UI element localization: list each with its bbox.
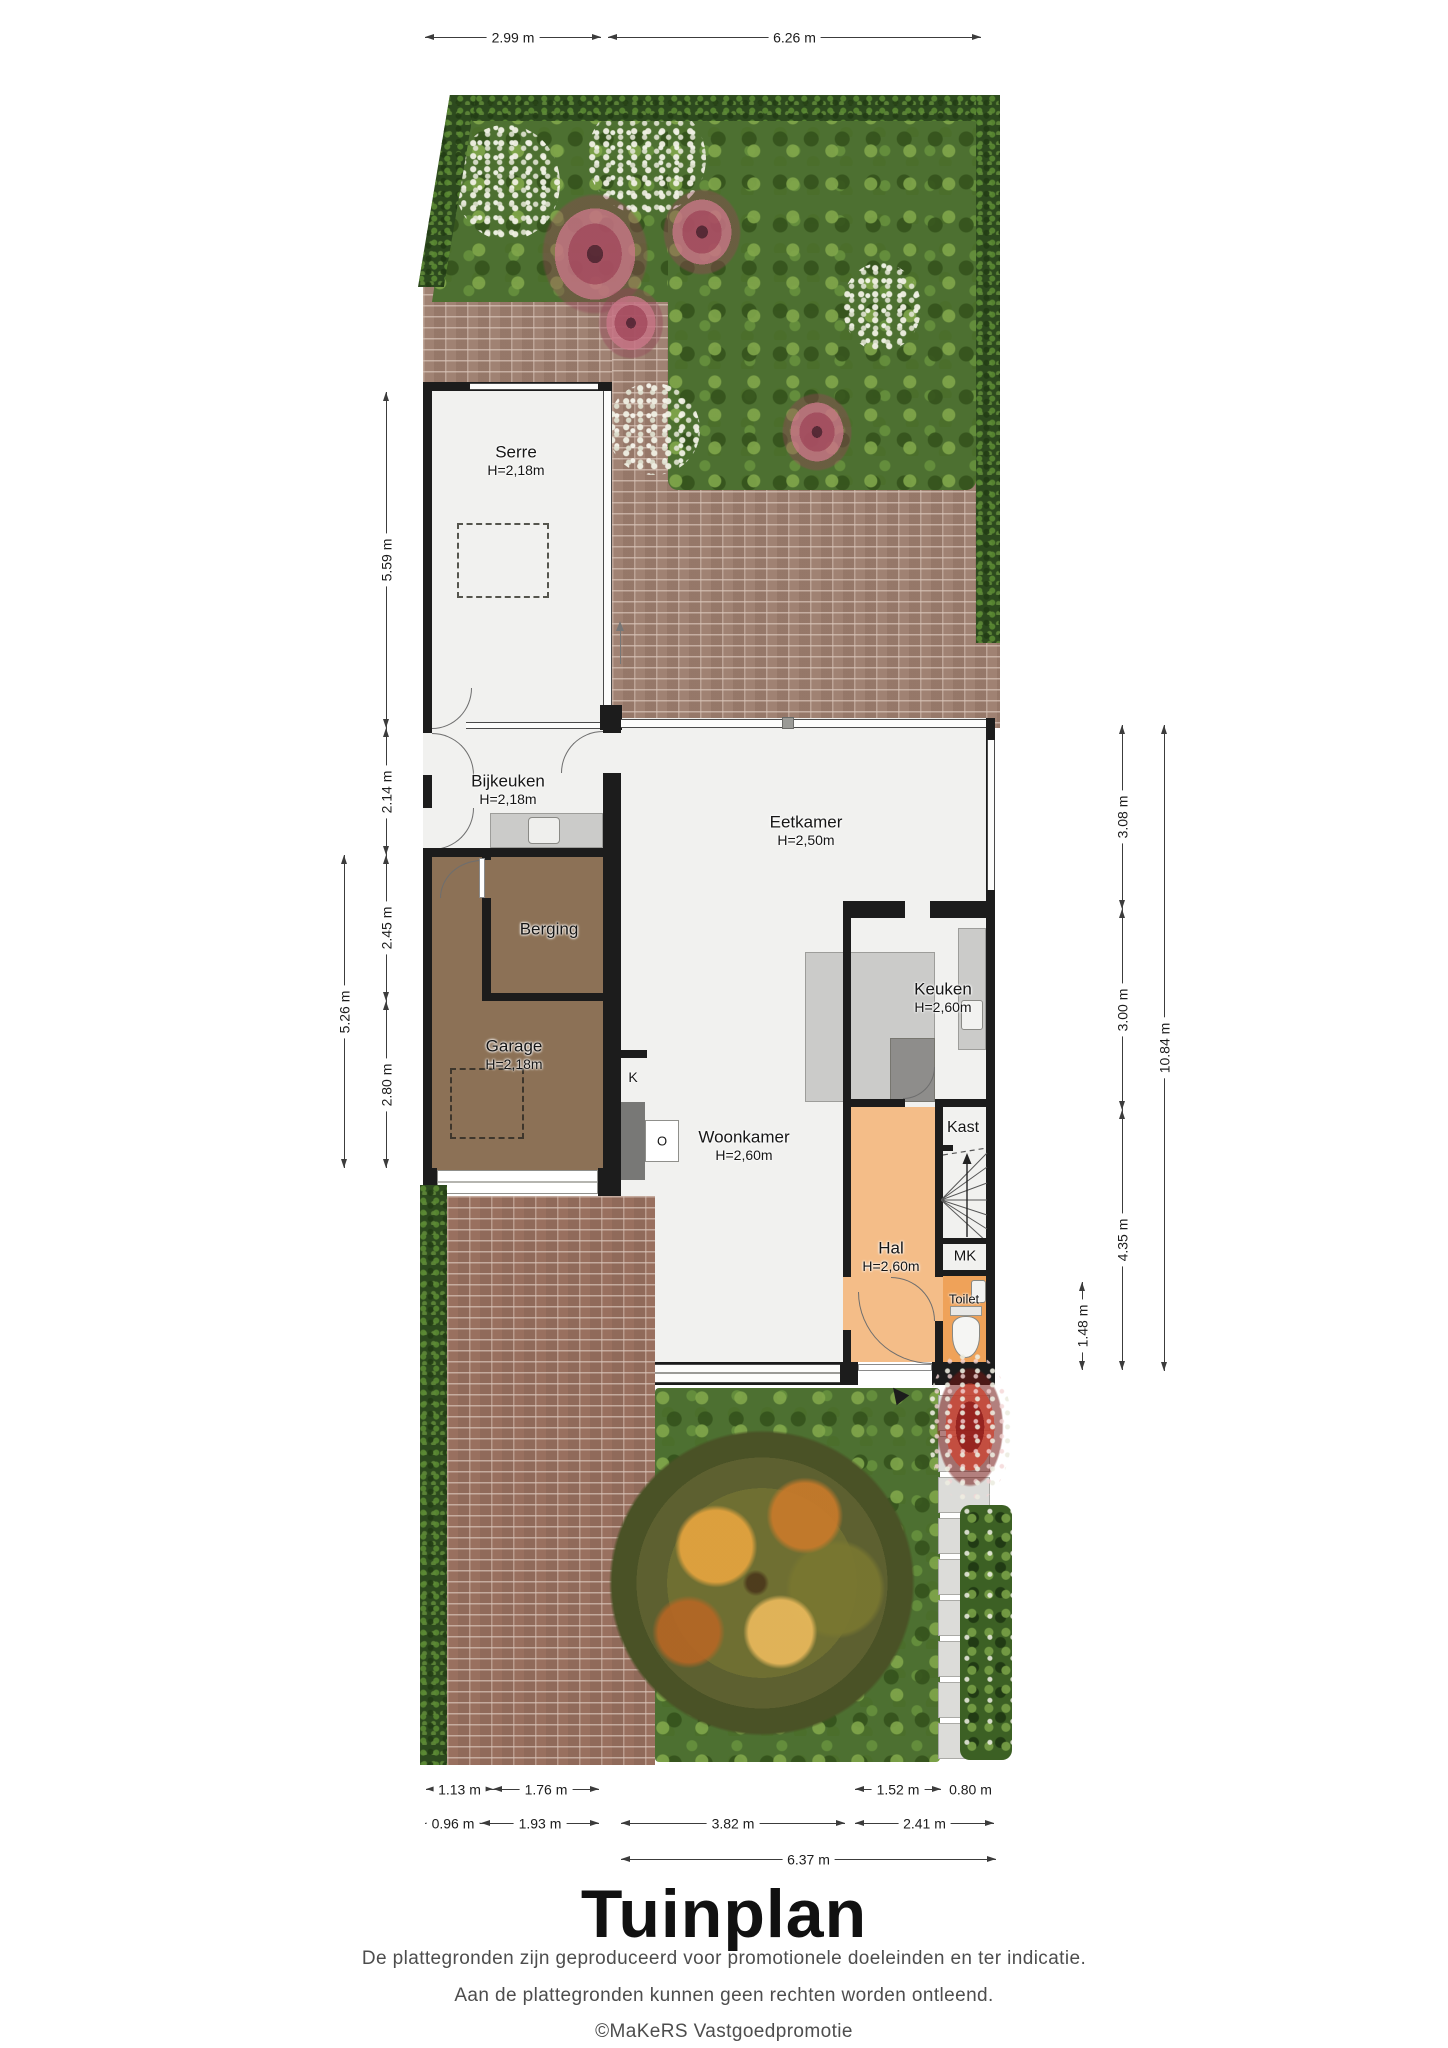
eetkamer-right-window	[987, 740, 995, 890]
hedge-right	[976, 95, 1000, 643]
dim-b2-096: 0.96 m	[425, 1823, 481, 1824]
door-gap	[423, 733, 432, 775]
footer-line-3: ©MaKeRS Vastgoedpromotie	[0, 2022, 1448, 2041]
front-door-leaf	[858, 1364, 932, 1371]
woonkamer-hal-door-gap	[843, 1277, 851, 1330]
hal-label: Hal	[878, 1240, 904, 1257]
page-title: Tuinplan	[0, 1880, 1448, 1948]
kast-top-wall	[935, 1099, 995, 1107]
autumn-tree	[609, 1430, 915, 1736]
hal-height: H=2,60m	[862, 1259, 919, 1273]
corner-post	[600, 705, 622, 730]
bijkeuken-bottom-wall	[423, 848, 612, 857]
dim-b1-113: 1.13 m	[426, 1789, 493, 1790]
chimney-block	[621, 1102, 645, 1180]
dim-b2-193: 1.93 m	[481, 1823, 599, 1824]
garage-label: Garage	[486, 1038, 543, 1055]
mk-toilet-wall	[935, 1270, 995, 1276]
patio-arrow-head	[616, 621, 624, 631]
dim-left-280: 2.80 m	[386, 1001, 387, 1168]
garage-door	[437, 1170, 598, 1194]
footer-line-2: Aan de plattegronden kunnen geen rechten…	[0, 1986, 1448, 2005]
serre-top-window	[470, 383, 598, 390]
k-label: K	[628, 1070, 637, 1084]
dim-right-435: 4.35 m	[1122, 1110, 1123, 1370]
toilet-cistern	[950, 1306, 982, 1316]
eetkamer-top-window	[621, 719, 986, 728]
garage-height: H=2,18m	[485, 1057, 542, 1071]
serre-right-window	[603, 391, 612, 718]
dim-right-308: 3.08 m	[1122, 725, 1123, 909]
dim-b1-080: 0.80 m	[947, 1789, 994, 1790]
woonkamer-label: Woonkamer	[698, 1129, 789, 1146]
mk-label: MK	[954, 1249, 977, 1264]
door-gap	[423, 808, 432, 850]
serre-label: Serre	[495, 444, 537, 461]
toilet-door-gap	[935, 1277, 943, 1321]
woonkamer-height: H=2,60m	[715, 1148, 772, 1162]
window-mullion	[782, 717, 794, 729]
dim-b1-152: 1.52 m	[855, 1789, 941, 1790]
stairs-mk-wall	[935, 1238, 995, 1244]
dim-top-1: 2.99 m	[425, 37, 601, 38]
white-flower-cluster	[608, 383, 700, 475]
dim-right-148: 1.48 m	[1082, 1282, 1083, 1370]
woonkamer-front-window	[640, 1364, 840, 1383]
driveway-brick	[447, 1196, 655, 1765]
k-niche-stub	[621, 1050, 647, 1058]
keuken-stub-wall-right	[930, 901, 995, 918]
dim-right-1084: 10.84 m	[1164, 725, 1165, 1371]
keuken-hal-wall	[848, 1099, 905, 1107]
dim-left-559: 5.59 m	[386, 392, 387, 728]
footer-line-1: De plattegronden zijn geproduceerd voor …	[0, 1949, 1448, 1968]
dim-b2-382: 3.82 m	[621, 1823, 845, 1824]
o-label: O	[657, 1135, 667, 1148]
kast-label: Kast	[947, 1120, 979, 1136]
serre-skylight-dashed	[457, 523, 549, 598]
dim-left-214: 2.14 m	[386, 728, 387, 855]
bijkeuken-eetkamer-door-gap	[603, 733, 621, 773]
berging-label: Berging	[520, 921, 579, 938]
pink-palm-plant	[653, 178, 751, 286]
pink-palm-plant	[590, 278, 672, 368]
dim-left-526: 5.26 m	[344, 855, 345, 1168]
toilet-label: Toilet	[949, 1293, 979, 1306]
berging-bottom-wall	[482, 993, 612, 1001]
hedge-top	[450, 95, 1000, 121]
garage-skylight-dashed	[450, 1068, 524, 1139]
pink-palm-plant	[773, 383, 861, 481]
bijkeuken-sink	[528, 817, 560, 844]
keuken-stub-wall-left	[845, 901, 905, 918]
keuken-label: Keuken	[914, 981, 972, 998]
bijkeuken-height: H=2,18m	[479, 792, 536, 806]
keuken-height: H=2,60m	[914, 1000, 971, 1014]
dim-b3-637: 6.37 m	[621, 1859, 996, 1860]
patio-arrow-line	[620, 630, 621, 664]
garden-floorplan: Serre H=2,18m Bijkeuken H=2,18m Eetkamer…	[0, 0, 1448, 2048]
serre-height: H=2,18m	[487, 463, 544, 477]
red-flower-shrub	[928, 1352, 1012, 1502]
hedge-left-bottom	[420, 1185, 447, 1765]
eetkamer-label: Eetkamer	[770, 814, 843, 831]
dim-right-300: 3.00 m	[1122, 909, 1123, 1110]
berging-door-leaf	[479, 858, 485, 898]
eetkamer-height: H=2,50m	[777, 833, 834, 847]
staircase	[941, 1145, 988, 1245]
dim-b1-176: 1.76 m	[493, 1789, 599, 1790]
bijkeuken-label: Bijkeuken	[471, 773, 545, 790]
palm-plants-right	[960, 1505, 1012, 1760]
left-outer-wall	[423, 382, 432, 1178]
white-flower-cluster	[843, 263, 921, 351]
dim-top-2: 6.26 m	[608, 37, 981, 38]
dim-left-245: 2.45 m	[386, 855, 387, 1001]
dim-b2-241: 2.41 m	[855, 1823, 994, 1824]
serre-bijkeuken-window	[466, 722, 603, 729]
